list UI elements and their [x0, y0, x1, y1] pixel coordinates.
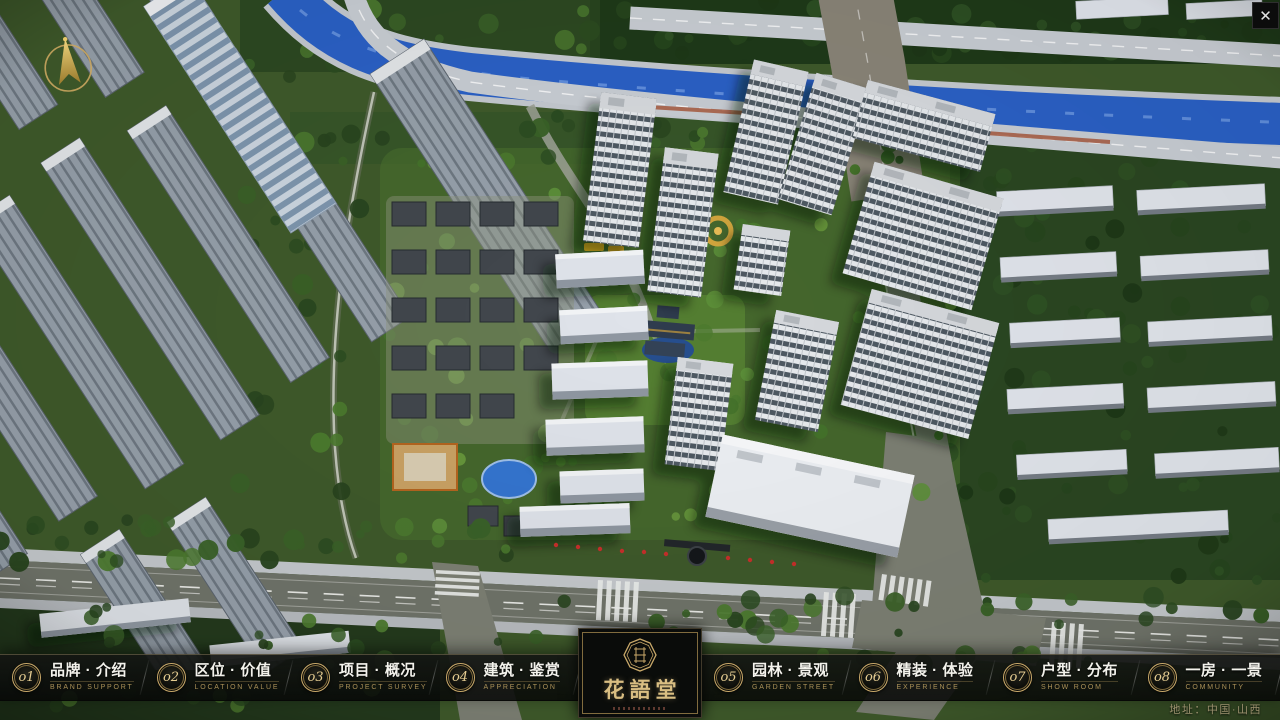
nav-item-brand[interactable]: o1 品牌 · 介绍 BRAND SUPPORT: [0, 655, 145, 700]
compass-icon: [36, 32, 100, 102]
nav-label-zh: 区位 · 价值: [195, 663, 280, 680]
nav-label-en: PROJECT SURVEY: [339, 681, 427, 692]
nav-label-en: BRAND SUPPORT: [50, 681, 134, 692]
nav-label-en: GARDEN STREET: [752, 681, 835, 692]
nav-label-zh: 建筑 · 鉴赏: [484, 663, 561, 680]
project-logo-panel[interactable]: 花語堂: [578, 628, 702, 718]
nav-group-right: o5 园林 · 景观 GARDEN STREET o6 精装 · 体验 EXPE…: [702, 655, 1280, 700]
nav-labels: 户型 · 分布 SHOW ROOM: [1041, 663, 1118, 692]
vignette-overlay: [0, 0, 1280, 720]
nav-item-location[interactable]: o2 区位 · 价值 LOCATION VALUE: [145, 655, 290, 700]
nav-labels: 建筑 · 鉴赏 APPRECIATION: [484, 663, 561, 692]
nav-labels: 精装 · 体验 EXPERIENCE: [897, 663, 974, 692]
nav-label-zh: 户型 · 分布: [1041, 663, 1118, 680]
nav-labels: 项目 · 概况 PROJECT SURVEY: [339, 663, 427, 692]
seal-icon: [622, 637, 658, 673]
nav-labels: 品牌 · 介绍 BRAND SUPPORT: [50, 663, 134, 692]
nav-labels: 区位 · 价值 LOCATION VALUE: [195, 663, 280, 692]
nav-group-left: o1 品牌 · 介绍 BRAND SUPPORT o2 区位 · 价值 LOCA…: [0, 655, 578, 700]
project-logo-title: 花語堂: [599, 674, 682, 704]
close-icon: ✕: [1259, 7, 1272, 25]
masterplan-3d-render: [0, 0, 1280, 720]
nav-label-en: SHOW ROOM: [1041, 681, 1118, 692]
nav-labels: 园林 · 景观 GARDEN STREET: [752, 663, 835, 692]
nav-badge-8: o8: [1148, 663, 1177, 692]
nav-label-en: LOCATION VALUE: [195, 681, 280, 692]
nav-label-zh: 品牌 · 介绍: [50, 663, 134, 680]
nav-item-interior[interactable]: o6 精装 · 体验 EXPERIENCE: [847, 655, 992, 700]
nav-badge-6: o6: [859, 663, 888, 692]
nav-label-zh: 园林 · 景观: [752, 663, 835, 680]
nav-item-architecture[interactable]: o4 建筑 · 鉴赏 APPRECIATION: [434, 655, 579, 700]
nav-item-garden[interactable]: o5 园林 · 景观 GARDEN STREET: [702, 655, 847, 700]
nav-label-zh: 精装 · 体验: [897, 663, 974, 680]
presentation-stage: ✕ o1 品牌 · 介绍 BRAND SUPPORT o2 区位 · 价值 LO…: [0, 0, 1280, 720]
nav-badge-2: o2: [157, 663, 186, 692]
nav-label-en: COMMUNITY: [1186, 681, 1263, 692]
nav-label-en: EXPERIENCE: [897, 681, 974, 692]
nav-badge-4: o4: [446, 663, 475, 692]
nav-badge-5: o5: [714, 663, 743, 692]
nav-label-zh: 一房 · 一景: [1186, 663, 1263, 680]
nav-badge-3: o3: [301, 663, 330, 692]
nav-item-project[interactable]: o3 项目 · 概况 PROJECT SURVEY: [289, 655, 434, 700]
nav-badge-1: o1: [12, 663, 41, 692]
nav-item-views[interactable]: o8 一房 · 一景 COMMUNITY: [1136, 655, 1280, 700]
project-address: 地址：中国·山西: [1169, 701, 1262, 717]
nav-item-floorplan[interactable]: o7 户型 · 分布 SHOW ROOM: [991, 655, 1136, 700]
nav-labels: 一房 · 一景 COMMUNITY: [1186, 663, 1263, 692]
logo-subtitle-mark: [613, 707, 667, 710]
nav-label-en: APPRECIATION: [484, 681, 561, 692]
close-button[interactable]: ✕: [1252, 2, 1279, 29]
nav-badge-7: o7: [1003, 663, 1032, 692]
nav-label-zh: 项目 · 概况: [339, 663, 427, 680]
